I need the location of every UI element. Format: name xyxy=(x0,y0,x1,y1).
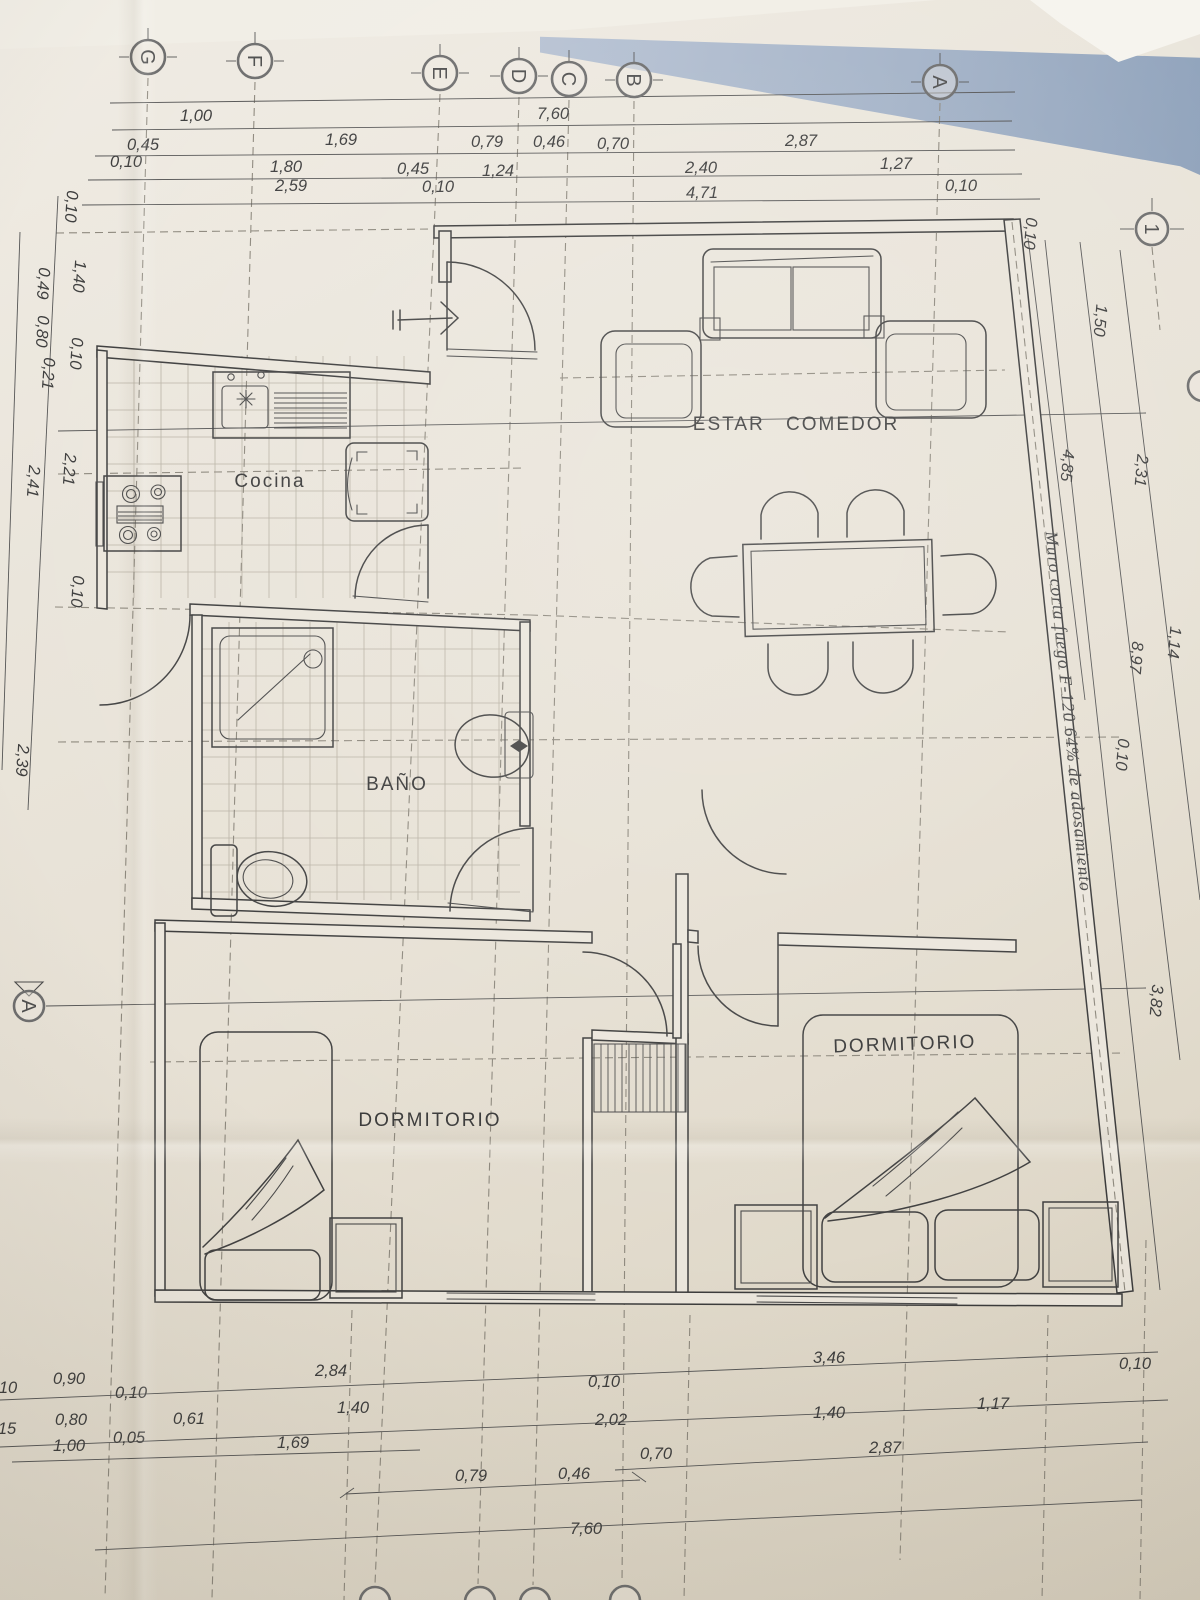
floor-plan-photo: 1,00 7,60 0,45 1,69 0,79 0,46 0,70 2,87 … xyxy=(0,0,1200,1600)
photo-vignette xyxy=(0,0,1200,1600)
